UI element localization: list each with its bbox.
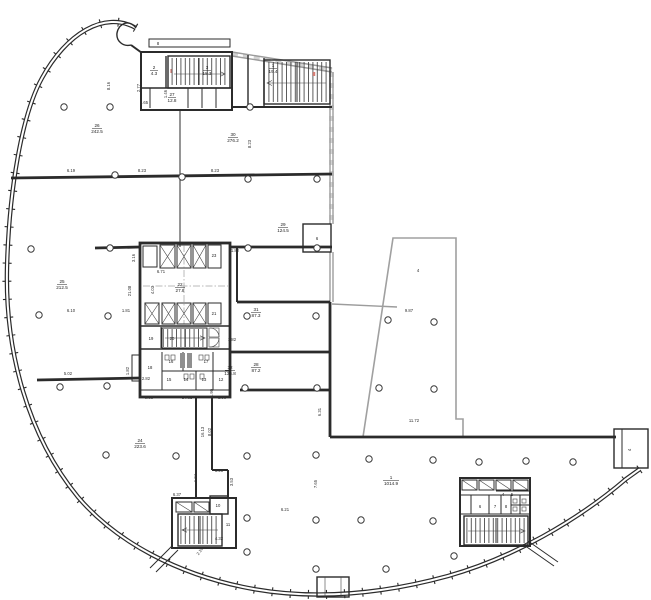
room-1-area: 1014.9 [384,481,398,486]
room-31-num: 31 [253,307,259,312]
dim-6-19: 6.19 [67,168,76,173]
room-27-area: 12.8 [168,98,177,103]
room-28-num: 28 [253,362,259,367]
dim-4-32: 4.32 [215,536,224,541]
room-3-num: 3 [206,65,209,70]
dim-8-02: 8.02 [207,427,212,436]
trapezoid-annex-outline [363,238,463,437]
room-3-area: 18.3 [203,71,212,76]
room-1s-area: 19.4 [269,69,278,74]
dim-3-53: 3.53 [229,477,234,486]
room-labels: 26 242.5 30 276.2 29 124.5 25 212.5 31 8… [56,63,399,486]
room-25-num: 25 [59,279,65,284]
dim-1-82-c: 1.82 [125,366,130,375]
room-29-area: 124.5 [277,228,289,233]
room-31-area: 87.3 [252,313,261,318]
dim-2-82: 2.82 [142,376,151,381]
dim-2-77: 2.77 [136,83,141,92]
dim-5-02: 5.02 [64,371,73,376]
room-32-num: 32 [227,365,233,370]
room-6e-num: 6 [316,236,319,241]
room-26-area: 242.5 [91,129,103,134]
east-exit-vestibule [614,429,648,468]
dim-6-37: 6.37 [173,492,182,497]
room-30-num: 30 [230,132,236,137]
dim-16-13: 16.13 [200,426,205,437]
dimension-labels: 8.16 6.19 8.23 8.23 8.23 2.77 5.65 1.46 … [64,81,420,556]
dim-11-72: 11.72 [409,418,420,423]
stairwell-top-right [232,55,332,107]
floor-plan-canvas: 26 242.5 30 276.2 29 124.5 25 212.5 31 8… [0,0,651,600]
room-17-num: 17 [204,359,209,364]
dim-1-82-b: 1.82 [228,337,237,342]
room-13-num: 13 [202,377,207,382]
room-25-area: 212.5 [56,285,68,290]
dim-7-65: 7.65 [313,479,318,488]
east-vestibule-num: 4 [627,448,632,451]
dim-1-46: 1.46 [163,89,168,98]
room-28-area: 87.2 [252,368,261,373]
room-16-num: 16 [169,359,174,364]
room-11-num: 11 [226,522,231,527]
room-22-area: 27.8 [176,288,185,293]
room-1s-num: 1 [272,63,275,68]
central-core [132,243,230,397]
dim-6-10: 6.10 [67,308,76,313]
elevator-shaft [160,245,206,268]
interior-walls [11,110,616,498]
dim-21-08: 21.08 [127,285,132,296]
room-24-area: 223.6 [134,444,146,449]
room-32-area: 136.8 [224,371,236,376]
room-6b-num: 6 [479,504,482,509]
dim-5-65: 5.65 [140,100,149,105]
room-22-num: 22 [177,282,183,287]
room-2-num: 2 [153,65,156,70]
dim-6-31: 6.31 [317,407,322,416]
room-18-num: 18 [148,365,153,370]
dim-4-03: 4.03 [150,285,155,294]
room-19-num: 19 [149,336,154,341]
room-21-num: 21 [212,311,217,316]
room-12-num: 12 [219,377,224,382]
canopy-num: 8 [157,41,160,46]
floor-plan-page: 26 242.5 30 276.2 29 124.5 25 212.5 31 8… [0,0,651,600]
dim-6-21: 6.21 [281,507,290,512]
dim-14-81: 14.81 [182,395,193,400]
dim-8-23-a: 8.23 [138,168,147,173]
dim-8-23-v: 8.23 [247,139,252,148]
dim-8-23-b: 8.23 [211,168,220,173]
trapezoid-room-num: 4 [417,268,420,273]
room-24-num: 24 [137,438,143,443]
dim-9-87: 9.87 [405,308,414,313]
dim-3-16: 3.16 [131,253,136,262]
dim-8-16: 8.16 [106,81,111,90]
room-20-num: 20 [170,336,175,341]
small-room-numbers: 23 21 19 20 18 16 17 15 14 13 12 11 10 6… [148,41,632,527]
room-29-num: 29 [280,222,286,227]
dim-9-83: 9.83 [145,395,154,400]
dim-1-90: 1.90 [209,388,214,397]
dim-1-94: 1.94 [193,473,198,482]
room-30-area: 276.2 [227,138,239,143]
room-7b-num: 7 [494,504,497,509]
elevator-shaft [145,303,206,324]
room-10-num: 10 [216,503,221,508]
room-26-num: 26 [94,123,100,128]
room-14-num: 14 [184,377,189,382]
dim-1-82-a: 1.82 [231,248,240,253]
dim-3-98: 3.98 [218,395,227,400]
room-2-area: 4.3 [151,71,158,76]
room-1-num: 1 [390,475,393,480]
stair-mark-2: II [313,72,316,78]
room-8b-num: 8 [505,504,508,509]
room-23-num: 23 [212,253,217,258]
dim-1-81: 1.81 [122,308,131,313]
room-15-num: 15 [167,377,172,382]
room-27-num: 27 [169,92,175,97]
room-label-fraction-bars [57,68,399,480]
dim-6-71: 6.71 [157,269,166,274]
dim-3-23: 3.23 [215,468,224,473]
